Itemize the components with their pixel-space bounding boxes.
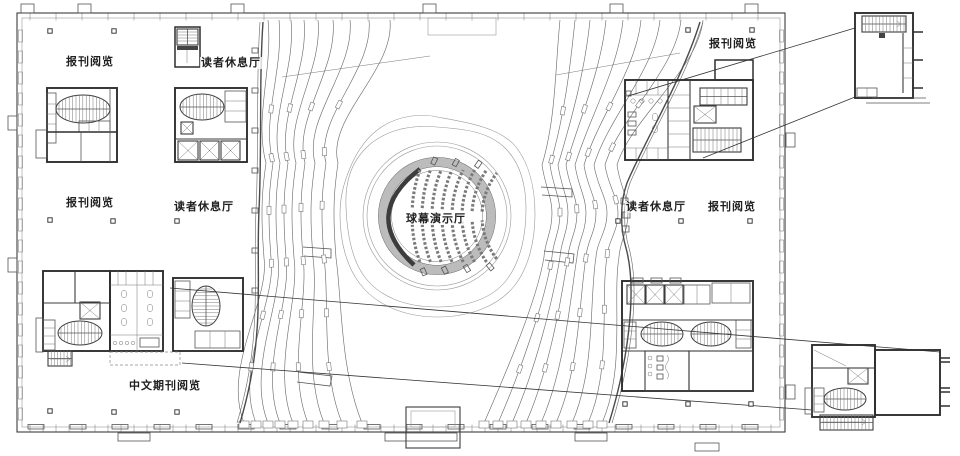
oval-stair (180, 94, 224, 120)
plumbing-fixture (648, 372, 652, 376)
terrace-joint (249, 363, 254, 371)
terrace-joint (284, 258, 288, 266)
plan-linework (282, 56, 430, 77)
plan-linework (252, 88, 258, 93)
oval-stair (56, 95, 110, 123)
elevator-shaft (181, 122, 193, 134)
terrace-joint (260, 311, 266, 320)
column (175, 410, 179, 414)
terrace-joint (278, 310, 283, 319)
straight-stair (700, 88, 747, 105)
terrace-joint (322, 255, 327, 263)
elevator-shaft (646, 285, 664, 304)
terrace-joint (578, 308, 583, 316)
plan-linework (21, 4, 34, 13)
terrace-joint (542, 364, 548, 373)
terrace-joint (301, 256, 306, 264)
column (686, 28, 690, 32)
plan-linework (17, 13, 785, 432)
plan-linework (814, 388, 824, 412)
toilet-fixture (147, 290, 153, 298)
column (48, 29, 52, 33)
dome-inner-shell (346, 126, 526, 307)
plan-linework (78, 4, 91, 13)
plan-linework (855, 13, 913, 98)
terrace-joint (269, 153, 275, 162)
plumbing-fixture (631, 99, 635, 103)
elevator-shaft (848, 368, 868, 384)
plumbing-fixture (125, 341, 129, 345)
terrace-joint (287, 104, 293, 113)
interior-columns (48, 28, 754, 414)
plan-linework (657, 374, 663, 379)
plan-linework (575, 433, 607, 441)
terrace-joint (636, 99, 644, 108)
column (48, 409, 52, 413)
plan-linework (252, 48, 258, 53)
plan-linework (8, 116, 17, 130)
toilet-fixture (121, 304, 127, 312)
terrace-joint (335, 100, 342, 109)
plan-linework (225, 91, 246, 122)
column (48, 218, 52, 222)
elevator-shaft (627, 285, 645, 304)
toilet-fixture (121, 318, 127, 326)
seat-row (432, 170, 441, 209)
plan-linework (252, 208, 258, 213)
plan-linework (628, 121, 636, 126)
column (623, 402, 627, 406)
terrace-joint (585, 148, 592, 157)
terrace-joint (570, 362, 575, 371)
terrace-joint (267, 206, 271, 214)
plan-linework (357, 421, 367, 428)
plan-linework (195, 331, 240, 348)
plan-linework (36, 130, 47, 158)
plan-linework (567, 421, 577, 428)
plan-linework (512, 20, 590, 423)
toilet-fixture (147, 318, 153, 326)
plan-linework (541, 20, 623, 423)
terrace-joint (581, 104, 587, 113)
plan-linework (479, 421, 489, 428)
plan-linework (695, 443, 719, 451)
plan-linework (8, 258, 17, 272)
column (175, 219, 179, 223)
plan-linework (47, 88, 117, 162)
building-envelope (8, 4, 795, 451)
seat-row (442, 170, 452, 209)
terrace-joint (299, 203, 303, 211)
elevator-shaft (665, 285, 683, 304)
terrace-joint (282, 205, 286, 213)
terrace-curves-right (479, 20, 703, 428)
terrace-joint (301, 150, 306, 158)
plan-linework (110, 352, 180, 365)
elevator-shaft (694, 106, 716, 123)
toilet-fixture (652, 113, 658, 121)
plumbing-fixture (113, 341, 117, 345)
terrace-step (303, 247, 331, 258)
straight-stair (693, 128, 741, 152)
plan-linework (736, 320, 751, 348)
plan-linework (43, 320, 55, 350)
plan-linework (118, 433, 150, 441)
terrace-joint (269, 105, 274, 113)
terrace-joint (575, 205, 579, 213)
plan-linework (175, 281, 190, 318)
terrace-joint (534, 313, 540, 322)
plan-linework (628, 28, 855, 96)
elevator-shaft (200, 141, 219, 160)
plan-linework (237, 22, 260, 423)
column (112, 410, 116, 414)
plan-linework (47, 93, 56, 143)
plan-linework (507, 421, 517, 428)
terrace-joint (308, 102, 314, 111)
plan-linework (610, 4, 623, 13)
plan-linework (715, 60, 753, 80)
column (686, 402, 690, 406)
plan-linework (319, 421, 329, 428)
plan-linework (251, 421, 261, 428)
column (749, 402, 753, 406)
plan-linework (551, 421, 561, 428)
plan-linework (252, 288, 258, 293)
terrace-joint (555, 311, 561, 320)
dome-theater-plan (340, 115, 535, 317)
plan-linework (385, 433, 457, 441)
terrace-joint (583, 254, 588, 263)
terrace-joint (516, 364, 523, 373)
seat-block (486, 263, 494, 271)
plan-linework (288, 421, 298, 428)
seat-block (474, 160, 482, 168)
terrace-joint (558, 208, 562, 216)
plan-linework (657, 356, 663, 361)
detail-callout-top-right (855, 13, 930, 103)
plumbing-fixture (649, 99, 653, 103)
column (679, 219, 683, 223)
column (616, 219, 620, 223)
plan-linework (583, 421, 593, 428)
plan-linework (428, 18, 496, 35)
elevator-shaft (80, 302, 100, 319)
terrace-joint (600, 361, 605, 369)
seat-row (422, 170, 430, 208)
plan-linework (812, 345, 875, 417)
terrace-joint (269, 259, 273, 267)
elevator-shaft (178, 141, 198, 160)
plumbing-fixture (658, 99, 662, 103)
terrace-joint (602, 305, 606, 313)
plan-linework (275, 421, 285, 428)
elevator-shaft (221, 141, 240, 160)
plumbing-fixture (648, 364, 652, 368)
seat-row (422, 224, 430, 262)
terrace-joint (606, 102, 613, 111)
plan-linework (170, 288, 940, 352)
plan-linework (493, 421, 503, 428)
plan-linework (303, 421, 313, 428)
terrace-joint (320, 201, 324, 209)
stair-elevator-cores (36, 27, 753, 391)
plan-linework (556, 53, 680, 75)
detail-callouts (805, 13, 950, 430)
terrace-joint (609, 143, 616, 152)
seat-row (442, 223, 452, 262)
terrace-joint (284, 152, 289, 161)
oval-stair (641, 322, 683, 346)
column (750, 28, 754, 32)
column (112, 29, 116, 33)
floor-plan-canvas (0, 0, 960, 456)
plan-linework (597, 421, 607, 428)
terrace-joint (566, 152, 572, 161)
seat-row (432, 223, 441, 262)
plan-linework (526, 20, 606, 423)
plan-linework (875, 350, 940, 415)
terrace-joint (322, 148, 326, 156)
plan-linework (263, 421, 273, 428)
plan-linework (879, 33, 885, 38)
plan-linework (786, 385, 795, 399)
terrace-joint (296, 363, 300, 371)
terrace-joint (613, 195, 619, 204)
terrace-joint (549, 155, 555, 164)
plan-linework (36, 318, 43, 352)
plan-linework (231, 4, 244, 13)
curtain-squiggle (666, 355, 669, 379)
plumbing-fixture (648, 356, 652, 360)
plan-linework (337, 421, 347, 428)
plan-linework (623, 212, 630, 218)
terrace-joint (560, 106, 565, 115)
column (748, 219, 752, 223)
toilet-fixture (147, 304, 153, 312)
plan-linework (689, 351, 753, 391)
plan-linework (175, 88, 247, 162)
oval-stair (824, 388, 866, 410)
column (111, 219, 115, 223)
plan-linework (657, 365, 663, 370)
plan-linework (140, 338, 159, 347)
plumbing-fixture (131, 341, 135, 345)
straight-stair (48, 351, 72, 366)
plan-linework (182, 363, 812, 410)
plan-linework (786, 133, 795, 147)
toilet-fixture (121, 290, 127, 298)
terrace-joint (548, 261, 553, 270)
terrace-joint (299, 310, 304, 318)
floor-plan-sheet: 报刊阅览 读者休息厅 报刊阅览 读者休息厅 球幕演示厅 报刊阅览 读者休息厅 报… (0, 0, 960, 456)
plan-linework (536, 421, 546, 428)
plan-linework (177, 46, 198, 50)
terrace-joint (327, 362, 332, 370)
terrace-joint (324, 309, 328, 317)
oval-stair (58, 321, 102, 345)
plan-linework (423, 4, 436, 13)
terrace-curves-left (237, 20, 430, 428)
straight-stair (177, 29, 198, 45)
terrace-joint (605, 249, 610, 257)
plan-linework (814, 350, 846, 366)
terrace-joint (565, 258, 570, 267)
plan-linework (252, 128, 258, 133)
plumbing-fixture (119, 341, 123, 345)
plan-linework (285, 20, 319, 423)
plan-linework (745, 4, 758, 13)
terrace-joint (593, 200, 598, 209)
dome-outer-shell (340, 115, 535, 317)
plan-linework (521, 421, 531, 428)
detail-callout-bottom-right (805, 345, 950, 430)
